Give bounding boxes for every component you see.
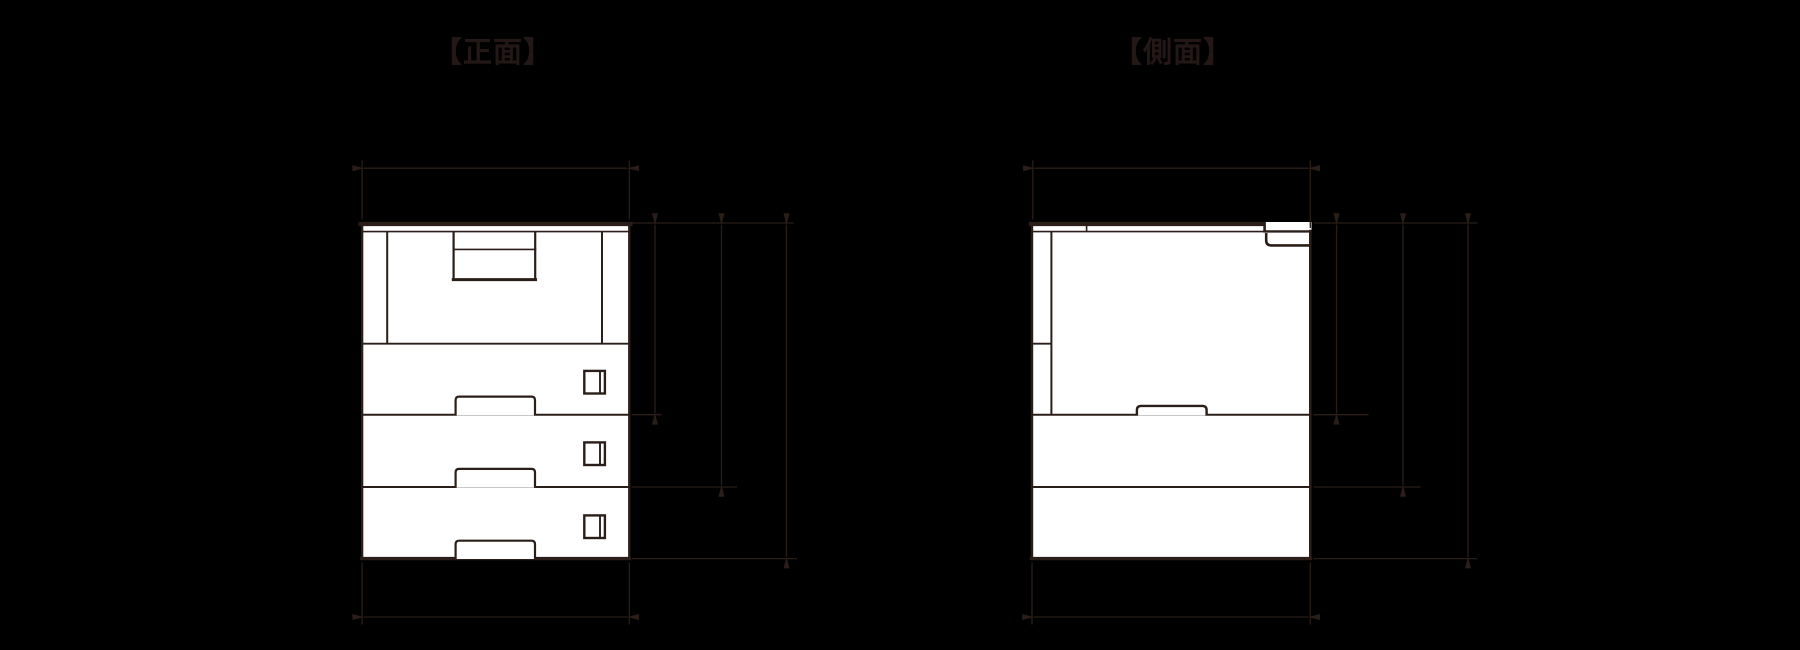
side-body-fill	[1031, 222, 1312, 560]
cassette-indicator-3	[584, 515, 605, 538]
dimension-drawing	[0, 0, 1800, 650]
cassette-indicator-2	[584, 442, 605, 465]
cassette-handle-2	[456, 469, 535, 488]
front-height-dimensions	[632, 223, 798, 559]
side-depth-dimension-top	[1033, 161, 1311, 229]
cassette-indicator-1	[584, 371, 605, 394]
cassette-handle-1	[456, 397, 535, 416]
side-printer-body	[1029, 222, 1312, 560]
printer-dimension-diagram: 【正面】 【側面】	[0, 0, 1800, 650]
cassette-handle-3	[456, 541, 535, 559]
front-view-drawing	[359, 161, 798, 625]
front-printer-body	[359, 222, 633, 560]
side-view-drawing	[1029, 161, 1478, 625]
front-width-dimension-bottom	[362, 563, 629, 625]
side-locating-tab	[1137, 406, 1207, 416]
side-height-dimensions	[1314, 223, 1478, 559]
side-depth-dimension-bottom	[1032, 563, 1310, 625]
front-width-dimension-top	[362, 161, 629, 220]
